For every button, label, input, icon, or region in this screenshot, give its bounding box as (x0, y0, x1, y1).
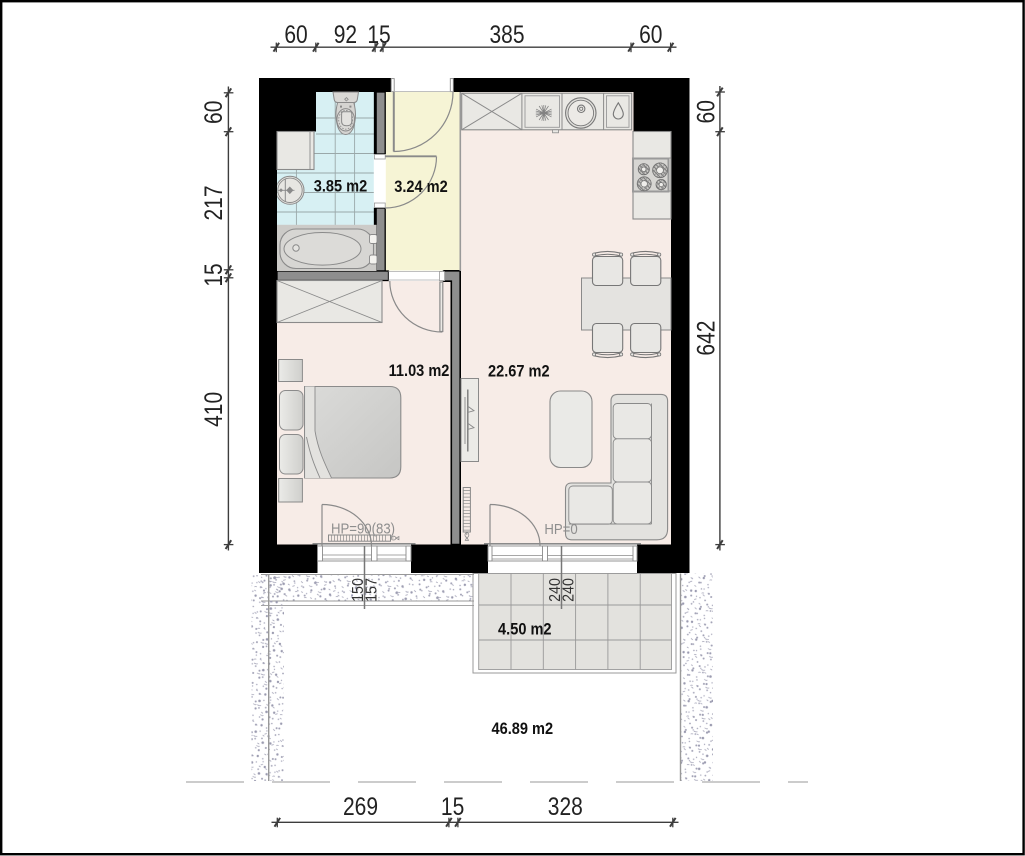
svg-text:157: 157 (364, 578, 381, 602)
svg-text:60: 60 (199, 101, 227, 124)
svg-text:60: 60 (639, 20, 662, 48)
svg-text:3.24 m2: 3.24 m2 (394, 178, 447, 196)
svg-text:15: 15 (367, 20, 390, 48)
svg-text:60: 60 (692, 100, 720, 123)
svg-text:385: 385 (489, 20, 524, 48)
svg-text:HP=90(83): HP=90(83) (331, 520, 395, 537)
svg-text:328: 328 (548, 792, 583, 820)
svg-text:11.03 m2: 11.03 m2 (389, 362, 450, 380)
svg-text:46.89 m2: 46.89 m2 (492, 720, 554, 738)
svg-text:4.50 m2: 4.50 m2 (498, 621, 551, 639)
svg-text:3.85 m2: 3.85 m2 (314, 178, 367, 196)
svg-text:92: 92 (334, 20, 357, 48)
svg-text:15: 15 (441, 792, 464, 820)
svg-text:15: 15 (199, 263, 227, 286)
svg-text:240: 240 (561, 578, 578, 602)
svg-text:410: 410 (199, 392, 227, 427)
svg-text:HP=0: HP=0 (544, 520, 577, 537)
svg-text:22.67 m2: 22.67 m2 (488, 363, 550, 381)
svg-text:269: 269 (343, 792, 378, 820)
svg-text:60: 60 (284, 20, 307, 48)
svg-text:642: 642 (692, 321, 720, 356)
svg-text:217: 217 (199, 185, 227, 220)
